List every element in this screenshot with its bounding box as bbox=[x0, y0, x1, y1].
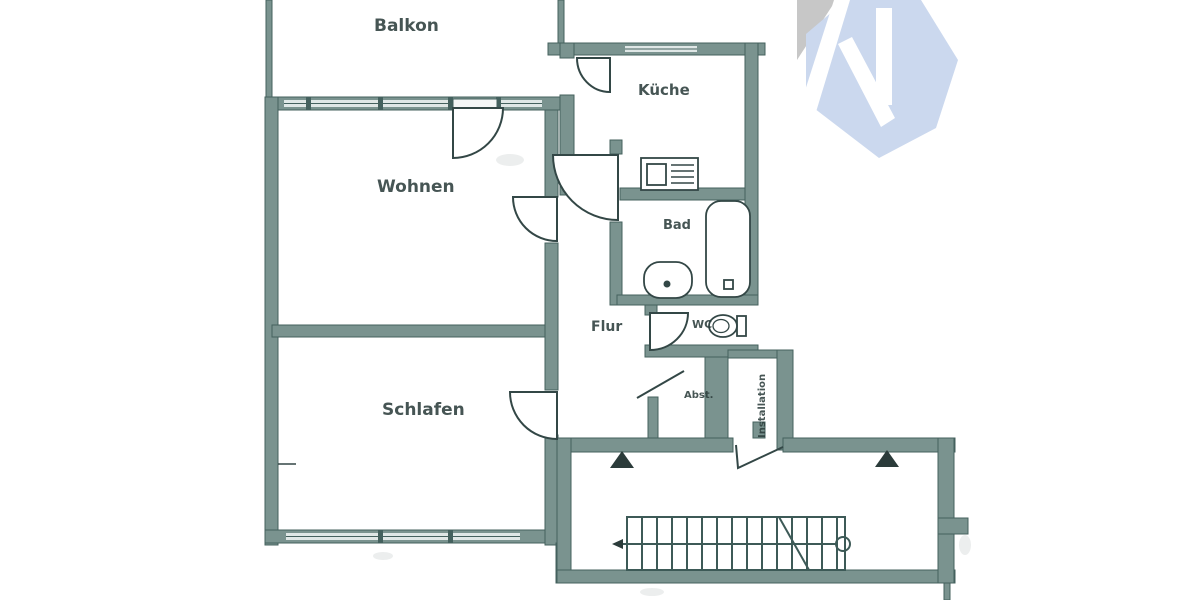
stairwell-bottom-wall bbox=[557, 570, 955, 583]
balcony-door-swing bbox=[453, 108, 503, 158]
room-label-wohnen: Wohnen bbox=[377, 177, 455, 197]
stair-pole bbox=[836, 537, 850, 551]
entrance-door-leaf bbox=[736, 445, 783, 468]
room-label-schlafen: Schlafen bbox=[382, 400, 465, 420]
stairwell-left-wall bbox=[557, 438, 571, 583]
wohnen-door-swing bbox=[513, 197, 557, 241]
triangle-marker-left bbox=[610, 451, 634, 468]
room-label-flur: Flur bbox=[591, 319, 622, 335]
room-label-bad: Bad bbox=[663, 218, 691, 233]
balcony-right-wall bbox=[558, 0, 564, 43]
washbasin-icon bbox=[644, 262, 692, 298]
room-label-kueche: Küche bbox=[638, 81, 690, 99]
kueche-west-wall-upper bbox=[560, 43, 574, 58]
balcony-door-threshold bbox=[453, 99, 497, 108]
room-label-balkon: Balkon bbox=[374, 16, 439, 36]
triangle-marker-right bbox=[875, 450, 899, 467]
stairwell-top-wall bbox=[783, 438, 955, 452]
abst-west-wall bbox=[648, 397, 658, 442]
lower-wall-tick bbox=[944, 583, 950, 600]
flur-west-wall-middle bbox=[545, 243, 558, 390]
left-exterior-wall bbox=[265, 97, 278, 545]
toilet-icon bbox=[709, 315, 746, 337]
room-label-abst: Abst. bbox=[684, 390, 713, 401]
wohnen-schlafen-wall bbox=[272, 325, 557, 337]
watermark-ki-logo bbox=[797, 0, 958, 158]
staircase bbox=[610, 450, 899, 570]
floor-plan: Balkon Wohnen Küche Bad Flur WC Schlafen… bbox=[0, 0, 1200, 600]
installation-right-wall bbox=[777, 350, 793, 450]
bad-west-wall-stub bbox=[610, 140, 622, 154]
abst-door-leaf bbox=[637, 371, 684, 398]
room-label-wc: WC bbox=[692, 318, 712, 331]
bad-door-swing bbox=[553, 155, 618, 220]
schlafen-door-swing bbox=[510, 392, 557, 439]
flur-west-wall-lower bbox=[545, 435, 558, 545]
room-label-installation: Installation bbox=[757, 374, 768, 438]
kitchen-unit-icon bbox=[641, 158, 698, 190]
balcony-left-wall bbox=[266, 0, 272, 97]
kueche-door-swing bbox=[577, 58, 610, 92]
bad-west-wall bbox=[610, 222, 622, 305]
stair-arrow bbox=[612, 539, 623, 549]
apartment-bottom-wall bbox=[557, 438, 733, 452]
right-wall-stub bbox=[938, 518, 968, 534]
wc-door-swing bbox=[650, 313, 688, 350]
i-bar-cutout bbox=[876, 8, 892, 105]
stairwell-right-wall bbox=[938, 438, 954, 583]
floor-plan-page: Balkon Wohnen Küche Bad Flur WC Schlafen… bbox=[0, 0, 1200, 600]
bathtub-icon bbox=[706, 201, 750, 297]
flur-west-wall-upper bbox=[545, 110, 558, 197]
